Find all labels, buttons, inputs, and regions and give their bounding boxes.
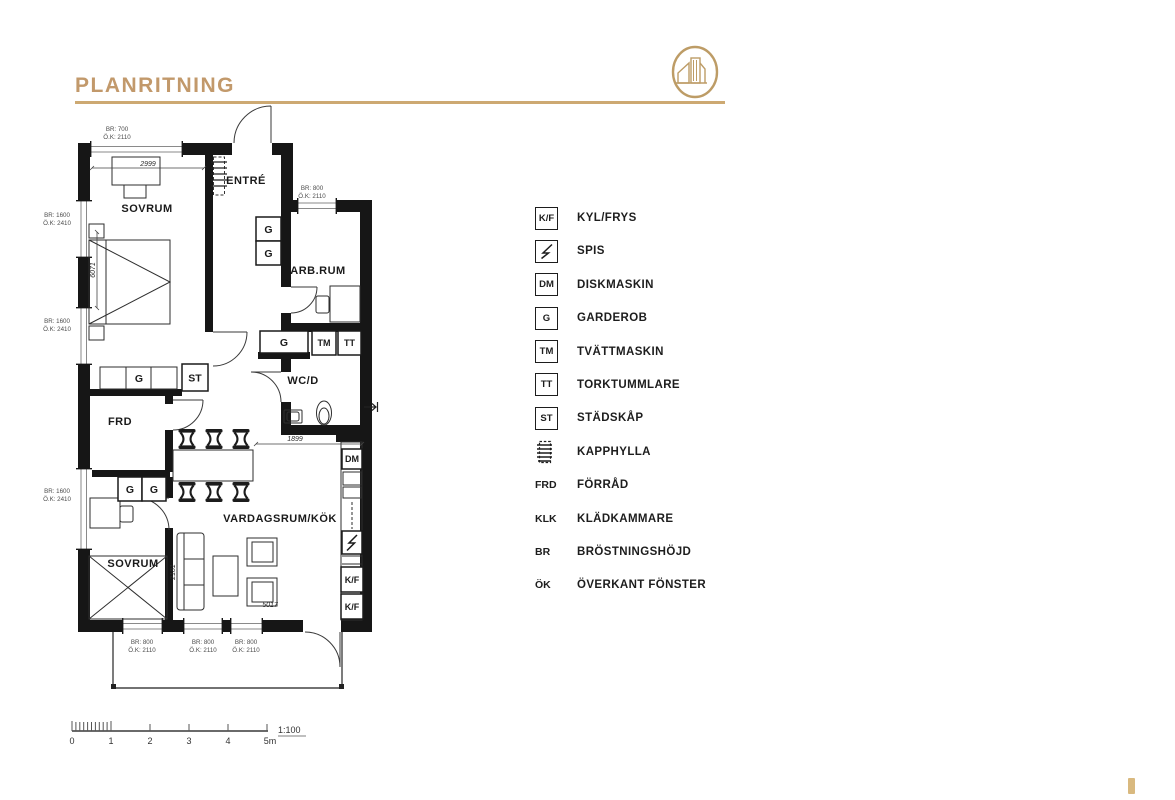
legend: K/FKYL/FRYS SPIS DMDISKMASKIN GGARDEROB … <box>535 207 706 608</box>
window <box>183 618 223 634</box>
legend-item-kylfrys: K/FKYL/FRYS <box>535 207 706 229</box>
dim-left: 6071 <box>90 262 97 278</box>
svg-text:K/F: K/F <box>345 575 360 585</box>
dim-bottom: 5017 <box>262 602 279 609</box>
scale-tick-0: 0 <box>69 736 74 746</box>
coat-rack-icon <box>535 440 555 464</box>
floor-plan: G G ST G G TM TT DM K/F K/F G G SOVRUM E… <box>40 100 385 700</box>
svg-text:G: G <box>150 484 158 496</box>
br-symbol: BR <box>535 546 550 558</box>
kf-symbol: K/F <box>535 207 558 230</box>
legend-item-garderob: GGARDEROB <box>535 307 706 329</box>
scale-tick-5m: 5m <box>264 736 277 746</box>
window-label: BR: 1600Ö.K: 2410 <box>43 488 71 503</box>
closet-box: G <box>256 217 281 241</box>
room-label-sovrum1: SOVRUM <box>121 203 172 215</box>
frd-symbol: FRD <box>535 479 557 491</box>
legend-item-overkant-fonster: ÖKÖVERKANT FÖNSTER <box>535 574 706 596</box>
window <box>297 198 337 214</box>
sovrum1-door-arc <box>213 332 247 366</box>
window <box>76 200 92 258</box>
toilet <box>317 401 332 425</box>
window-label: BR: 1600Ö.K: 2410 <box>43 212 71 227</box>
dim-top: 2999 <box>139 161 156 168</box>
legend-item-kladkammare: KLKKLÄDKAMMARE <box>535 508 706 530</box>
window <box>122 618 163 634</box>
wc-closet-box: G <box>260 331 308 353</box>
desk-sovrum2 <box>90 498 133 528</box>
page-marker <box>1128 778 1135 794</box>
freezer-box: K/F <box>341 594 363 619</box>
room-label-wcd: WC/D <box>287 375 318 387</box>
double-bed <box>89 224 170 340</box>
room-label-sovrum2: SOVRUM <box>107 558 158 570</box>
svg-text:G: G <box>264 248 272 260</box>
furniture <box>89 157 378 620</box>
closet-box: G <box>142 477 166 501</box>
tm-symbol: TM <box>535 340 558 363</box>
sovrum2-door-arc <box>137 498 169 530</box>
klk-symbol: KLK <box>535 513 557 525</box>
svg-text:DM: DM <box>345 454 359 464</box>
cleaning-closet-box: ST <box>182 364 208 391</box>
scale-ratio: 1:100 <box>278 725 301 735</box>
dim-sofa: 2181 <box>170 564 177 581</box>
builder-logo-icon <box>668 44 722 100</box>
room-labels: SOVRUM ENTRÉ ARB.RUM WC/D FRD SOVRUM VAR… <box>107 174 345 570</box>
wardrobe-label: G <box>135 373 143 385</box>
washer-box: TM <box>312 331 336 355</box>
svg-text:TM: TM <box>318 338 331 348</box>
entry-door-arc <box>234 106 271 143</box>
room-label-arbrum: ARB.RUM <box>290 265 345 277</box>
window <box>230 618 263 634</box>
legend-item-torktumlare: TTTORKTUMMLARE <box>535 374 706 396</box>
dryer-box: TT <box>338 331 361 355</box>
window <box>76 307 92 365</box>
window-label: BR: 800Ö.K: 2110 <box>232 639 260 654</box>
dining-chairs <box>179 429 250 502</box>
stove-box <box>342 531 362 554</box>
legend-item-stadskap: STSTÄDSKÅP <box>535 407 706 429</box>
legend-item-diskmaskin: DMDISKMASKIN <box>535 274 706 296</box>
desk-arbrum <box>316 286 360 322</box>
room-label-entre: ENTRÉ <box>226 174 266 187</box>
svg-text:G: G <box>126 484 134 496</box>
page-title: PLANRITNING <box>75 74 235 98</box>
legend-item-tvattmaskin: TMTVÄTTMASKIN <box>535 341 706 363</box>
dim-wc: 1899 <box>287 436 303 443</box>
dining-table <box>173 450 253 481</box>
legend-item-spis: SPIS <box>535 240 706 262</box>
scale-tick-3: 3 <box>186 736 191 746</box>
dimension-annotations: 2999 6071 1899 2181 5017 <box>90 161 364 609</box>
window-label: BR: 800Ö.K: 2110 <box>128 639 156 654</box>
coffee-table <box>213 556 238 596</box>
room-label-frd: FRD <box>108 416 132 428</box>
coat-rack <box>211 157 227 195</box>
window-label: BR: 700Ö.K: 2110 <box>103 126 131 141</box>
svg-text:ST: ST <box>188 373 202 385</box>
scale-tick-4: 4 <box>225 736 230 746</box>
armchair <box>247 538 277 566</box>
svg-text:TT: TT <box>344 338 355 348</box>
window-label: BR: 800Ö.K: 2110 <box>298 185 326 200</box>
closet-box: G <box>256 241 281 265</box>
legend-item-kapphylla: KAPPHYLLA <box>535 441 706 463</box>
fridge-box: K/F <box>341 567 363 592</box>
svg-text:K/F: K/F <box>345 602 360 612</box>
lightning-icon <box>535 240 558 263</box>
balcony-door-arc <box>305 632 340 667</box>
svg-text:G: G <box>280 337 288 349</box>
sofa <box>177 533 204 610</box>
dishwasher-box: DM <box>342 449 362 469</box>
g-symbol: G <box>535 307 558 330</box>
window-label: BR: 1600Ö.K: 2410 <box>43 318 71 333</box>
window <box>90 141 183 157</box>
floorplan-page: PLANRITNING <box>0 0 1175 800</box>
frd-door-arc <box>173 400 203 430</box>
svg-text:G: G <box>264 224 272 236</box>
ok-symbol: ÖK <box>535 579 551 591</box>
window-label: BR: 800Ö.K: 2110 <box>189 639 217 654</box>
st-symbol: ST <box>535 407 558 430</box>
scale-bar: 0 1 2 3 4 5m 1:100 <box>60 712 320 760</box>
tt-symbol: TT <box>535 373 558 396</box>
scale-tick-1: 1 <box>108 736 113 746</box>
dm-symbol: DM <box>535 273 558 296</box>
scale-tick-2: 2 <box>147 736 152 746</box>
wc-door-arc <box>251 372 281 402</box>
legend-item-brostningshojd: BRBRÖSTNINGSHÖJD <box>535 541 706 563</box>
closet-box: G <box>118 477 142 501</box>
legend-item-forrad: FRDFÖRRÅD <box>535 474 706 496</box>
arbrum-door-arc <box>291 287 317 313</box>
room-label-vardagsrum: VARDAGSRUM/KÖK <box>223 512 337 525</box>
